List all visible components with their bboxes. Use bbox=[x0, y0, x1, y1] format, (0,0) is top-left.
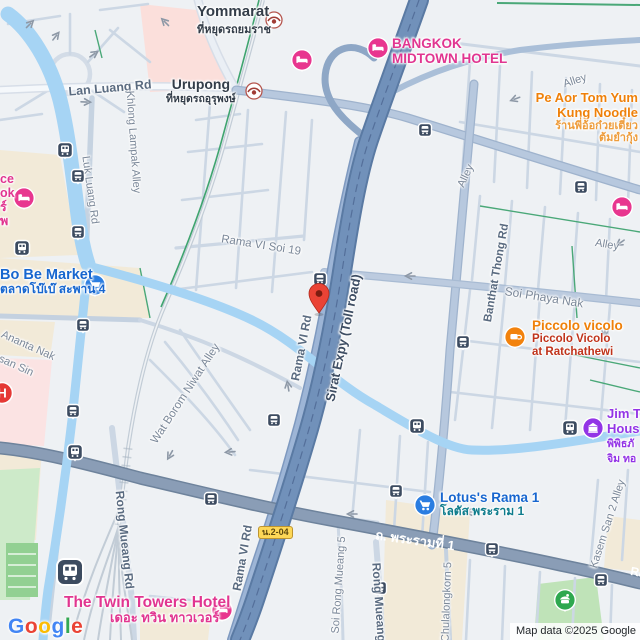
bus-stop-icon[interactable] bbox=[457, 336, 470, 351]
poi-label-bangkok-midtown[interactable]: BANGKOK MIDTOWN HOTEL bbox=[392, 36, 507, 66]
bus-stop-icon[interactable] bbox=[268, 414, 281, 429]
poi-label-jim-thompson[interactable]: Jim T Hous พิพิธภั จิม ทอ bbox=[607, 407, 640, 466]
bus-stop-icon[interactable] bbox=[205, 493, 218, 508]
bus-stop-icon[interactable] bbox=[67, 405, 80, 420]
poi-label-piccolo[interactable]: Piccolo vicolo Piccolo Vicolo at Ratchat… bbox=[532, 318, 623, 359]
bus-stop-icon[interactable] bbox=[575, 181, 588, 196]
train-stop-icon[interactable] bbox=[15, 241, 30, 258]
bus-stop-icon[interactable] bbox=[72, 226, 85, 241]
train-stop-icon[interactable] bbox=[563, 421, 578, 438]
soi-phaya-nak-road bbox=[324, 272, 640, 303]
map-canvas[interactable]: H Yommarat ที่หยุดรถยมราช Urupong ที่หยุ… bbox=[0, 0, 640, 640]
hotel-pin[interactable] bbox=[611, 196, 633, 219]
station-label-yommarat[interactable]: Yommarat ที่หยุดรถยมราช bbox=[197, 4, 271, 38]
hotel-pin[interactable] bbox=[291, 49, 313, 72]
metro-station-icon[interactable] bbox=[57, 559, 83, 585]
poi-label-twin-towers[interactable]: The Twin Towers Hotel เดอะ ทวิน ทาวเวอร์ bbox=[64, 594, 231, 626]
bus-stop-icon[interactable] bbox=[486, 543, 499, 558]
bus-stop-icon[interactable] bbox=[419, 124, 432, 139]
railway-emblem-icon bbox=[246, 83, 262, 99]
route-badge: น.2-04 bbox=[258, 526, 293, 539]
poi-label-pe-aor[interactable]: Pe Aor Tom Yum Kung Noodle ร้านพี่อ้อก๋ว… bbox=[500, 91, 638, 145]
train-stop-icon[interactable] bbox=[410, 419, 425, 436]
poi-label-bo-be[interactable]: Bo Be Market ตลาดโบ๊เบ๊ สะพาน 4 bbox=[0, 267, 105, 297]
train-stop-icon[interactable] bbox=[68, 445, 83, 462]
train-stop-icon[interactable] bbox=[58, 143, 73, 160]
sports-field bbox=[6, 543, 38, 597]
google-logo[interactable]: Google bbox=[8, 615, 83, 639]
poi-label-edge-hotel-fragment[interactable]: ce ok ร์ พ bbox=[0, 172, 15, 228]
bus-stop-icon[interactable] bbox=[77, 319, 90, 334]
map-attribution[interactable]: Map data ©2025 Google bbox=[510, 623, 640, 640]
station-label-urupong[interactable]: Urupong ที่หยุดรถอุรุพงษ์ bbox=[166, 77, 236, 105]
poi-label-lotus[interactable]: Lotus's Rama 1 โลตัส พระราม 1 bbox=[440, 490, 539, 519]
bus-stop-icon[interactable] bbox=[390, 485, 403, 500]
bus-stop-icon[interactable] bbox=[595, 574, 608, 589]
station-label-yommarat-thai: ที่หยุดรถยมราช bbox=[197, 24, 271, 36]
hospital-letter: H bbox=[0, 386, 7, 401]
